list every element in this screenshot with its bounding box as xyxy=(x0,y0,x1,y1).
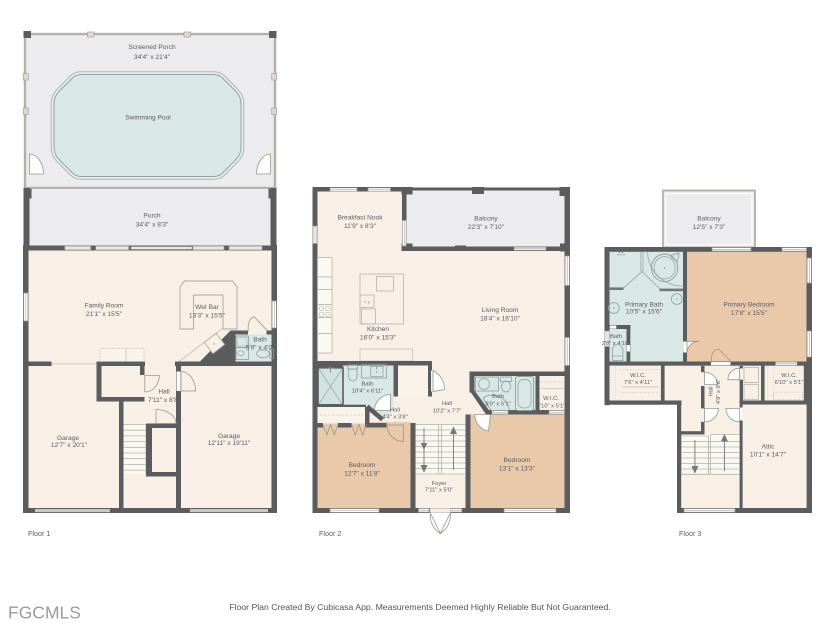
svg-text:W.I.C.: W.I.C. xyxy=(781,373,797,379)
svg-text:21'1" x 15'5": 21'1" x 15'5" xyxy=(86,311,123,318)
svg-text:8'9" x 5'1": 8'9" x 5'1" xyxy=(485,402,510,408)
svg-text:7'11" x 5'0": 7'11" x 5'0" xyxy=(425,488,453,494)
svg-text:17'8" x 15'5": 17'8" x 15'5" xyxy=(731,310,768,317)
svg-text:Floor Plan Created By Cubicasa: Floor Plan Created By Cubicasa App. Meas… xyxy=(229,602,610,612)
svg-text:22'3" x 7'10": 22'3" x 7'10" xyxy=(468,224,505,231)
svg-text:W.I.C.: W.I.C. xyxy=(543,396,559,402)
svg-text:10'2" x 7'7": 10'2" x 7'7" xyxy=(433,409,462,415)
svg-text:16'0" x 15'3": 16'0" x 15'3" xyxy=(360,335,397,342)
svg-text:12'7" x 11'8": 12'7" x 11'8" xyxy=(344,471,380,478)
svg-text:Hall: Hall xyxy=(390,408,400,414)
svg-text:Foyer: Foyer xyxy=(432,481,447,487)
svg-text:10'5" x 15'6": 10'5" x 15'6" xyxy=(626,309,663,316)
svg-text:W.I.C.: W.I.C. xyxy=(630,373,646,379)
svg-text:10'1" x 14'7": 10'1" x 14'7" xyxy=(750,452,787,459)
svg-text:Breakfast Nook: Breakfast Nook xyxy=(337,215,383,222)
svg-text:Floor 1: Floor 1 xyxy=(28,529,50,538)
svg-text:Kitchen: Kitchen xyxy=(367,326,389,333)
svg-text:Floor 2: Floor 2 xyxy=(319,529,341,538)
svg-text:7'10" x 5'1": 7'10" x 5'1" xyxy=(537,404,566,410)
svg-text:10'4" x 6'11": 10'4" x 6'11" xyxy=(352,388,383,394)
svg-text:Swimming Pool: Swimming Pool xyxy=(125,115,171,122)
svg-text:6'10" x 5'1": 6'10" x 5'1" xyxy=(775,380,804,386)
svg-text:4'4" x 3'8": 4'4" x 3'8" xyxy=(382,415,407,421)
svg-text:Porch: Porch xyxy=(143,213,161,220)
svg-text:4'9" x 9'6": 4'9" x 9'6" xyxy=(716,379,722,404)
svg-text:Primary Bath: Primary Bath xyxy=(625,302,663,309)
svg-text:Floor 3: Floor 3 xyxy=(679,529,701,538)
svg-text:34'4" x 8'3": 34'4" x 8'3" xyxy=(136,222,169,229)
svg-text:7'6" x 4'11": 7'6" x 4'11" xyxy=(624,380,652,386)
svg-text:Screened Porch: Screened Porch xyxy=(128,44,176,51)
svg-text:11'9" x 8'3": 11'9" x 8'3" xyxy=(344,223,377,230)
svg-text:Bath: Bath xyxy=(610,334,622,340)
svg-text:2'8" x 4'10": 2'8" x 4'10" xyxy=(602,341,631,347)
svg-text:12'11" x 19'11": 12'11" x 19'11" xyxy=(208,440,251,447)
svg-text:Bedroom: Bedroom xyxy=(504,457,531,464)
svg-text:Attic: Attic xyxy=(762,444,776,451)
svg-text:Primary Bedroom: Primary Bedroom xyxy=(723,302,775,309)
svg-text:Bath: Bath xyxy=(362,382,374,388)
svg-text:5'9" x 4'0": 5'9" x 4'0" xyxy=(246,345,275,352)
svg-text:Family Room: Family Room xyxy=(85,303,124,310)
svg-text:+ o: + o xyxy=(364,300,371,305)
svg-text:13'1" x 13'3": 13'1" x 13'3" xyxy=(499,466,536,473)
svg-text:7'11" x 8'8": 7'11" x 8'8" xyxy=(148,397,181,404)
svg-text:Bedroom: Bedroom xyxy=(349,462,376,469)
svg-text:Hall: Hall xyxy=(158,389,170,396)
svg-text:Hall: Hall xyxy=(442,401,452,407)
svg-text:Wet Bar: Wet Bar xyxy=(195,304,220,311)
svg-text:13'3" x 15'5": 13'3" x 15'5" xyxy=(189,313,226,320)
svg-text:Bath: Bath xyxy=(253,337,267,344)
svg-text:12'7" x 20'1": 12'7" x 20'1" xyxy=(51,442,88,449)
svg-text:12'5" x 7'3": 12'5" x 7'3" xyxy=(693,224,726,231)
svg-text:Balcony: Balcony xyxy=(474,216,498,223)
svg-text:Hall: Hall xyxy=(709,387,715,397)
svg-text:34'4" x 21'4": 34'4" x 21'4" xyxy=(134,54,171,61)
svg-text:18'4" x 16'10": 18'4" x 16'10" xyxy=(480,316,520,323)
svg-text:Balcony: Balcony xyxy=(697,216,721,223)
svg-text:Bath: Bath xyxy=(492,394,504,400)
svg-text:FGCMLS: FGCMLS xyxy=(8,603,81,623)
svg-text:Living Room: Living Room xyxy=(482,307,519,314)
